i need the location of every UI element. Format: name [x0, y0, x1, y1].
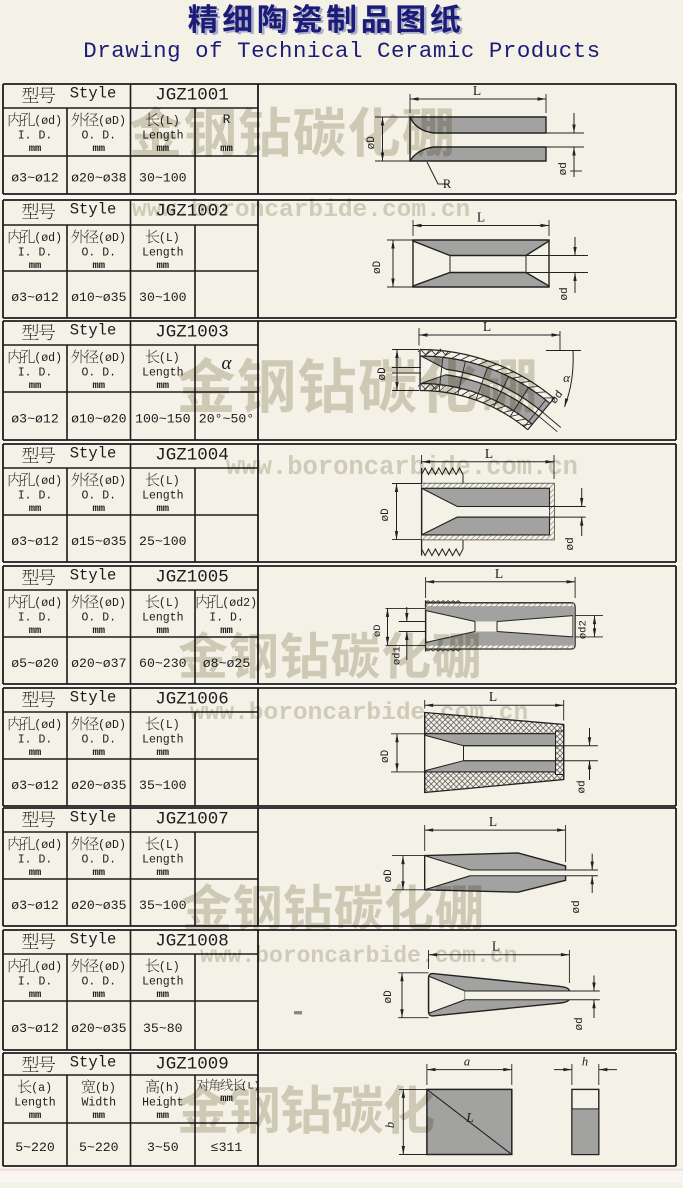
svg-text:5~220: 5~220 [79, 1140, 119, 1155]
svg-text:O. D.: O. D. [82, 976, 117, 989]
svg-text:øD: øD [380, 749, 392, 763]
svg-text:a: a [464, 1055, 470, 1069]
svg-text:www.boroncarbide.com.cn: www.boroncarbide.com.cn [226, 453, 578, 482]
svg-text:(b): (b) [95, 1082, 116, 1095]
svg-text:I. D.: I. D. [18, 490, 53, 503]
svg-text:Style: Style [70, 1054, 117, 1072]
svg-text:Length: Length [142, 734, 183, 747]
svg-text:(ød): (ød) [34, 352, 62, 365]
svg-text:øD: øD [383, 990, 395, 1004]
svg-text:ø3~ø12: ø3~ø12 [11, 1021, 58, 1036]
svg-text:35~100: 35~100 [139, 778, 187, 793]
svg-text:≤311: ≤311 [211, 1140, 243, 1155]
svg-text:35~80: 35~80 [143, 1021, 183, 1036]
svg-text:ø3~ø12: ø3~ø12 [11, 898, 58, 913]
svg-text:(h): (h) [159, 1082, 180, 1095]
svg-text:mm: mm [29, 867, 42, 879]
svg-text:20°~50°: 20°~50° [199, 412, 254, 427]
svg-text:mm: mm [156, 747, 169, 759]
svg-text:JGZ1005: JGZ1005 [155, 568, 229, 588]
svg-text:ø10~ø20: ø10~ø20 [71, 412, 126, 427]
svg-text:I. D.: I. D. [18, 130, 53, 143]
svg-text:O. D.: O. D. [82, 130, 117, 143]
svg-text:mm: mm [92, 867, 105, 879]
svg-text:ø20~ø35: ø20~ø35 [71, 898, 126, 913]
svg-text:Length: Length [142, 976, 183, 989]
svg-text:mm: mm [156, 1110, 169, 1122]
svg-text:mm: mm [220, 625, 233, 637]
svg-text:ø3~ø12: ø3~ø12 [11, 171, 58, 186]
svg-text:mm: mm [92, 260, 105, 272]
svg-text:mm: mm [29, 747, 42, 759]
svg-text:JGZ1009: JGZ1009 [155, 1055, 229, 1075]
svg-text:ød: ød [577, 780, 589, 793]
svg-text:R: R [443, 177, 452, 191]
svg-text:ø5~ø20: ø5~ø20 [11, 656, 59, 671]
svg-text:L: L [477, 210, 485, 225]
svg-text:Length: Length [142, 367, 183, 380]
svg-text:Style: Style [70, 322, 117, 340]
svg-text:mm: mm [92, 1110, 105, 1122]
svg-text:mm: mm [29, 260, 42, 272]
svg-text:ød2: ød2 [578, 620, 590, 639]
svg-text:L: L [473, 83, 481, 98]
svg-text:mm: mm [29, 503, 42, 515]
svg-text:O. D.: O. D. [82, 367, 117, 380]
svg-text:Style: Style [70, 85, 117, 103]
svg-text:Length: Length [142, 490, 183, 503]
svg-text:JGZ1003: JGZ1003 [155, 323, 229, 343]
svg-text:Width: Width [82, 1097, 117, 1110]
svg-text:I. D.: I. D. [18, 247, 53, 260]
svg-text:I. D.: I. D. [18, 367, 53, 380]
svg-text:(ød2): (ød2) [222, 597, 257, 610]
svg-text:25~100: 25~100 [139, 534, 187, 549]
svg-text:30~100: 30~100 [139, 290, 187, 305]
svg-text:(øD): (øD) [98, 961, 126, 974]
svg-text:O. D.: O. D. [82, 734, 117, 747]
svg-text:I. D.: I. D. [18, 612, 53, 625]
svg-text:ød: ød [558, 162, 570, 175]
svg-text:JGZ1007: JGZ1007 [155, 810, 229, 830]
svg-text:(L): (L) [159, 961, 180, 974]
svg-text:60~230: 60~230 [139, 656, 187, 671]
svg-text:Style: Style [70, 567, 117, 585]
svg-text:(ød): (ød) [34, 597, 62, 610]
svg-text:JGZ1004: JGZ1004 [155, 446, 229, 466]
svg-text:øD: øD [380, 508, 392, 522]
svg-text:www.boroncarbide.com.cn: www.boroncarbide.com.cn [200, 943, 517, 969]
svg-text:(øD): (øD) [98, 115, 126, 128]
svg-text:h: h [582, 1055, 588, 1069]
svg-text:ø20~ø35: ø20~ø35 [71, 778, 126, 793]
svg-text:(øD): (øD) [98, 232, 126, 245]
svg-text:mm: mm [92, 989, 105, 1001]
svg-text:Drawing of Technical Ceramic P: Drawing of Technical Ceramic Products [83, 38, 601, 64]
svg-text:øD: øD [372, 260, 384, 274]
svg-text:L: L [489, 814, 497, 829]
svg-text:mm: mm [156, 503, 169, 515]
svg-text:L: L [495, 566, 503, 581]
svg-text:100~150: 100~150 [135, 412, 190, 427]
svg-text:α: α [563, 370, 571, 385]
svg-text:35~100: 35~100 [139, 898, 187, 913]
svg-text:mm: mm [29, 380, 42, 392]
svg-text:O. D.: O. D. [82, 247, 117, 260]
svg-text:mm: mm [92, 747, 105, 759]
svg-text:ø15~ø35: ø15~ø35 [71, 534, 126, 549]
svg-text:Style: Style [70, 201, 117, 219]
svg-text:(øD): (øD) [98, 597, 126, 610]
svg-text:ød: ød [559, 287, 571, 300]
svg-text:JGZ1001: JGZ1001 [155, 86, 229, 106]
svg-text:(ød): (ød) [34, 839, 62, 852]
svg-text:L: L [465, 1110, 474, 1125]
svg-text:O. D.: O. D. [82, 490, 117, 503]
svg-text:5~220: 5~220 [15, 1140, 55, 1155]
svg-text:Length: Length [142, 854, 183, 867]
svg-text:(øD): (øD) [98, 352, 126, 365]
svg-text:O. D.: O. D. [82, 612, 117, 625]
svg-text:(ød): (ød) [34, 232, 62, 245]
svg-text:3~50: 3~50 [147, 1140, 179, 1155]
svg-text:Height: Height [142, 1097, 183, 1110]
svg-text:øD: øD [383, 869, 395, 883]
svg-text:mm: mm [156, 380, 169, 392]
svg-text:ø3~ø12: ø3~ø12 [11, 412, 58, 427]
svg-text:(ød): (ød) [34, 475, 62, 488]
svg-text:Style: Style [70, 809, 117, 827]
svg-text:ø20~ø35: ø20~ø35 [71, 1021, 126, 1036]
svg-text:O. D.: O. D. [82, 854, 117, 867]
svg-text:mm: mm [29, 143, 42, 155]
svg-text:30~100: 30~100 [139, 171, 187, 186]
svg-text:(øD): (øD) [98, 475, 126, 488]
svg-text:mm: mm [29, 1110, 42, 1122]
svg-text:ød: ød [565, 537, 577, 550]
svg-text:mm: mm [92, 503, 105, 515]
svg-text:(ød): (ød) [34, 961, 62, 974]
svg-text:mm: mm [92, 143, 105, 155]
svg-text:(L): (L) [159, 719, 180, 732]
svg-text:L: L [483, 319, 491, 334]
svg-text:ø3~ø12: ø3~ø12 [11, 778, 58, 793]
svg-text:I. D.: I. D. [18, 734, 53, 747]
svg-text:ø10~ø35: ø10~ø35 [71, 290, 126, 305]
svg-text:(ød): (ød) [34, 719, 62, 732]
svg-text:mm: mm [156, 989, 169, 1001]
svg-text:(ød): (ød) [34, 115, 62, 128]
svg-text:(øD): (øD) [98, 839, 126, 852]
svg-text:(a): (a) [31, 1082, 52, 1095]
svg-text:mm: mm [92, 625, 105, 637]
svg-text:ø3~ø12: ø3~ø12 [11, 290, 58, 305]
svg-text:www.boroncarbide.com.cn: www.boroncarbide.com.cn [132, 197, 470, 224]
svg-text:(L): (L) [159, 597, 180, 610]
svg-text:Style: Style [70, 689, 117, 707]
svg-text:Length: Length [142, 612, 183, 625]
svg-text:(L): (L) [159, 232, 180, 245]
svg-text:ød: ød [571, 900, 583, 913]
svg-text:Style: Style [70, 931, 117, 949]
svg-text:I. D.: I. D. [209, 612, 244, 625]
svg-text:I. D.: I. D. [18, 854, 53, 867]
svg-text:I. D.: I. D. [18, 976, 53, 989]
svg-text:ø3~ø12: ø3~ø12 [11, 534, 58, 549]
svg-text:(L): (L) [159, 475, 180, 488]
svg-text:Length: Length [142, 247, 183, 260]
svg-text:mm: mm [29, 989, 42, 1001]
svg-text:ø20~ø38: ø20~ø38 [71, 171, 126, 186]
svg-text:ø20~ø37: ø20~ø37 [71, 656, 126, 671]
svg-text:mm: mm [92, 380, 105, 392]
svg-text:mm: mm [29, 625, 42, 637]
svg-text:mm: mm [156, 625, 169, 637]
svg-text:mm: mm [156, 260, 169, 272]
svg-text:(L): (L) [159, 839, 180, 852]
svg-text:Length: Length [14, 1097, 55, 1110]
svg-text:(øD): (øD) [98, 719, 126, 732]
svg-text:(L): (L) [159, 352, 180, 365]
svg-text:Style: Style [70, 445, 117, 463]
svg-text:mm: mm [156, 867, 169, 879]
svg-text:ød: ød [574, 1017, 586, 1030]
svg-text:www.boroncarbide.com.cn: www.boroncarbide.com.cn [190, 700, 528, 727]
